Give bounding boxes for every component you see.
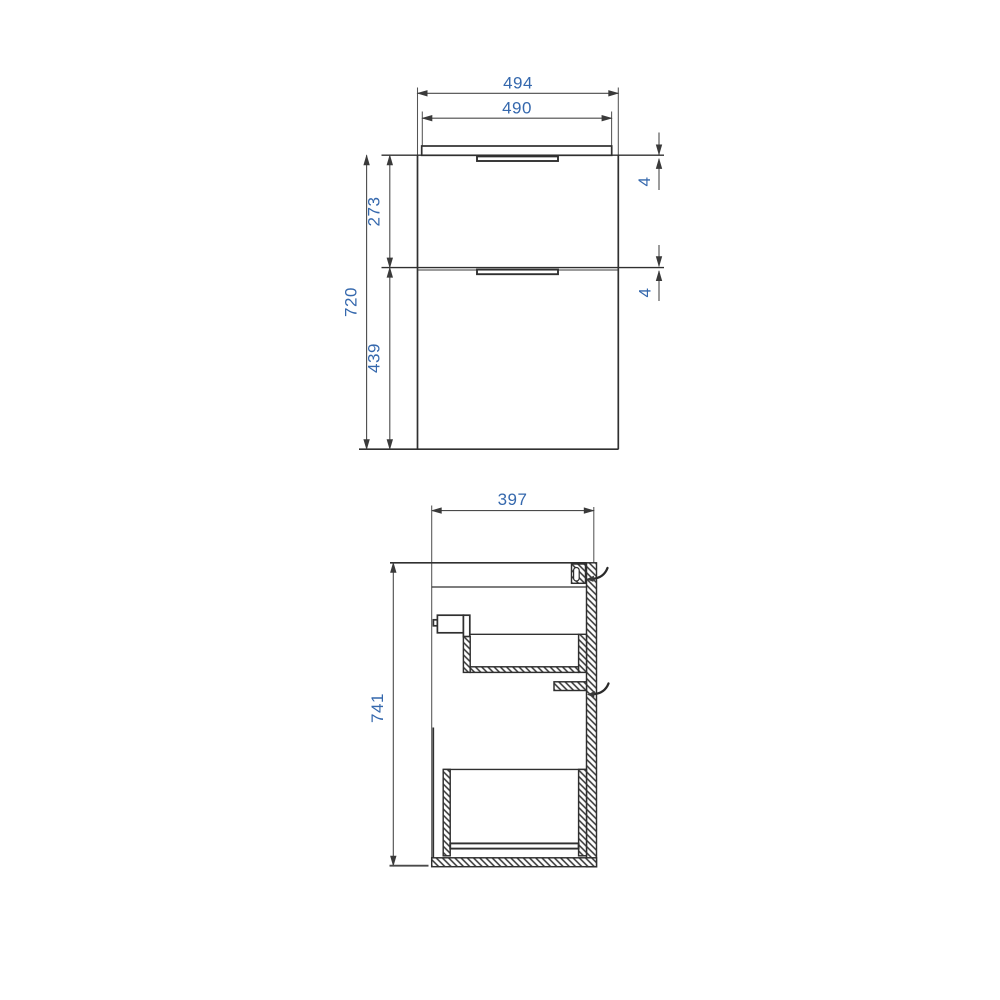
cabinet-technical-drawing: 494 490 720 273 439 4 4	[0, 0, 1000, 1000]
drawer1-front-wall-section	[463, 637, 470, 673]
back-wall-section	[587, 563, 597, 867]
side-view: 397 7	[368, 490, 609, 867]
drawer2-handle-recess	[477, 270, 558, 275]
drawer1-handle-recess	[477, 156, 558, 161]
countertop-panel	[422, 146, 612, 155]
side-depth-label: 397	[498, 490, 528, 509]
drawer1-bottom-section	[470, 667, 578, 673]
drawer2-back-wall-section	[579, 769, 587, 855]
drawer2-bottom-panel	[450, 843, 578, 848]
drawer1-back-wall-section	[579, 634, 587, 672]
front-cabinet-width-label: 490	[502, 99, 532, 118]
cabinet-bottom-section	[432, 858, 597, 867]
middle-gap-label: 4	[636, 288, 655, 298]
lower-drawer-height-label: 439	[365, 343, 384, 373]
front-view: 494 490 720 273 439 4 4	[342, 74, 665, 450]
wall-bracket-slot	[574, 568, 580, 582]
drawer2-front-wall-section	[443, 769, 450, 855]
upper-drawer-height-label: 273	[365, 197, 384, 227]
drawer1-front-strip	[463, 615, 469, 636]
drawer1-front-block	[437, 615, 463, 633]
front-top-width-label: 494	[503, 74, 533, 93]
side-total-height-label: 741	[368, 693, 387, 723]
top-gap-label: 4	[635, 177, 654, 187]
technical-drawing-canvas: 494 490 720 273 439 4 4	[0, 0, 1000, 1000]
front-total-height-label: 720	[342, 287, 361, 317]
mounting-rail	[554, 682, 587, 691]
